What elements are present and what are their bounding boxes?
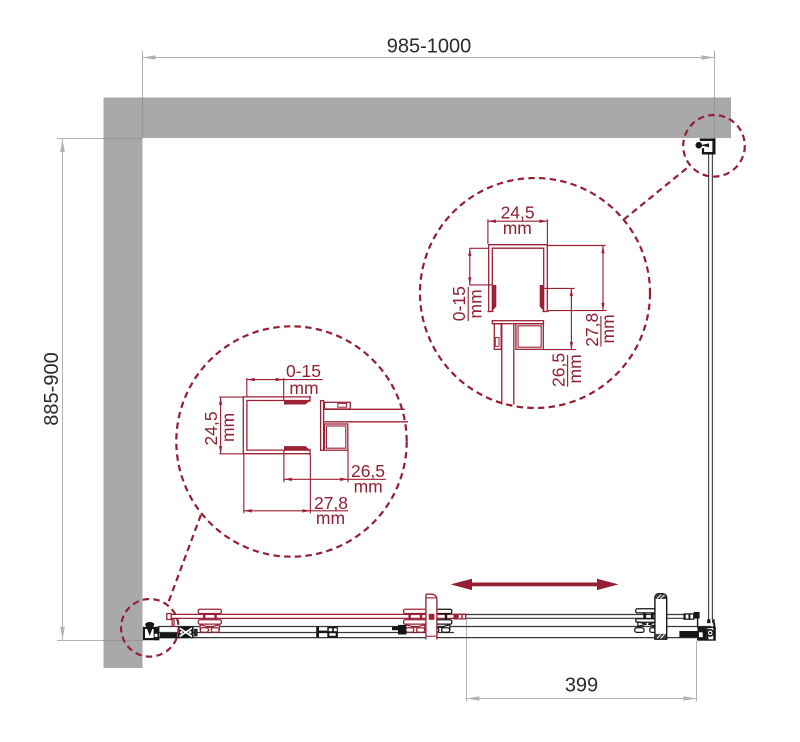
svg-text:mm: mm bbox=[565, 354, 585, 383]
svg-text:mm: mm bbox=[289, 378, 318, 398]
svg-text:885-900: 885-900 bbox=[41, 352, 63, 425]
svg-text:985-1000: 985-1000 bbox=[387, 36, 472, 58]
svg-text:399: 399 bbox=[565, 675, 598, 697]
svg-text:mm: mm bbox=[354, 477, 383, 497]
svg-text:mm: mm bbox=[465, 289, 485, 318]
svg-text:mm: mm bbox=[503, 218, 532, 238]
svg-text:mm: mm bbox=[316, 508, 345, 528]
svg-text:mm: mm bbox=[598, 314, 618, 343]
svg-text:mm: mm bbox=[218, 413, 238, 442]
